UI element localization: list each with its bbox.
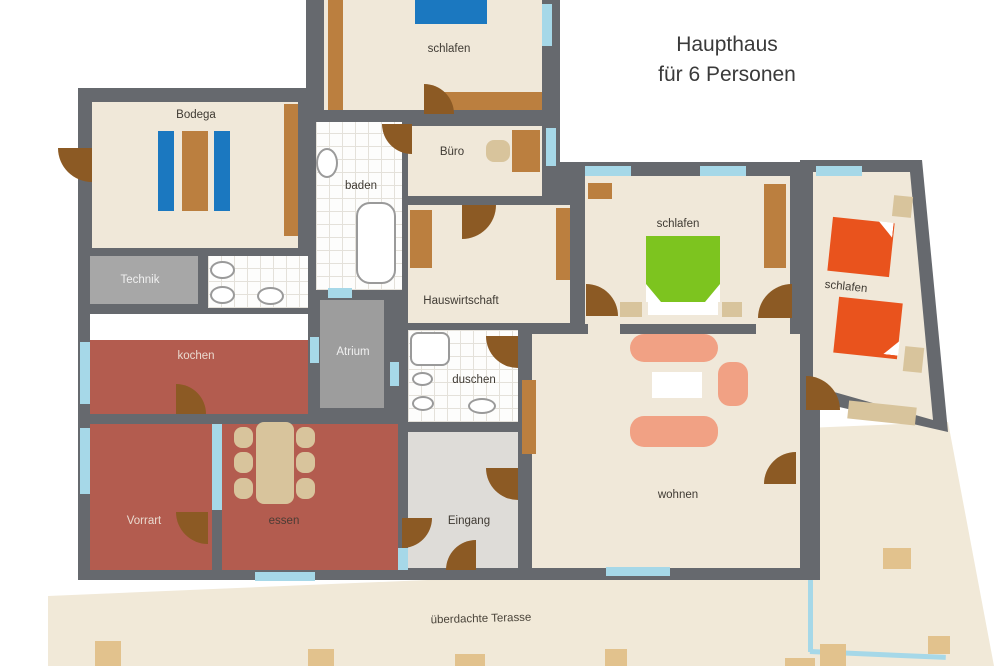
cabinet — [522, 380, 536, 454]
bed-blue — [415, 0, 487, 24]
coffee-table — [652, 372, 702, 398]
wardrobe — [410, 210, 432, 268]
door-gap — [588, 324, 620, 334]
label-baden: baden — [345, 180, 377, 192]
sofa — [630, 334, 718, 362]
window — [255, 572, 315, 581]
sink — [316, 148, 338, 178]
sink — [412, 396, 434, 411]
window — [606, 567, 670, 576]
label-essen: essen — [269, 515, 300, 527]
plan-title-line1: Haupthaus — [612, 30, 842, 60]
terrace-step — [883, 548, 911, 569]
sink — [468, 398, 496, 414]
window — [310, 337, 319, 363]
terrace-glass-line-vertical — [808, 574, 813, 652]
terrace-paver — [308, 649, 334, 666]
sofa — [630, 416, 718, 447]
wardrobe — [556, 208, 570, 280]
bathtub — [356, 202, 396, 284]
terrace-paver — [785, 658, 815, 666]
label-duschen: duschen — [452, 374, 495, 386]
window — [542, 4, 552, 46]
label-schlafen-oben: schlafen — [428, 43, 471, 55]
terrace-paver — [95, 641, 121, 666]
label-wohnen: wohnen — [658, 489, 698, 501]
terrace-paver — [928, 636, 950, 654]
kitchen-counter — [90, 314, 308, 340]
wardrobe — [764, 184, 786, 268]
wardrobe — [328, 0, 343, 110]
window — [398, 548, 408, 570]
dining-chair — [296, 478, 315, 499]
bed-foot — [648, 302, 718, 315]
label-technik: Technik — [121, 274, 160, 286]
dining-chair — [234, 452, 253, 473]
dining-table — [256, 422, 294, 504]
buero-desk — [512, 130, 540, 172]
window — [700, 166, 746, 176]
label-eingang: Eingang — [448, 515, 490, 527]
dining-chair — [234, 427, 253, 448]
label-bodega: Bodega — [176, 109, 216, 121]
nightstand — [722, 302, 742, 317]
window — [585, 166, 631, 176]
toilet — [210, 261, 235, 279]
window — [80, 342, 90, 404]
label-kochen: kochen — [177, 350, 214, 362]
window — [328, 288, 352, 298]
label-atrium: Atrium — [336, 346, 369, 358]
terrace-paver — [605, 649, 627, 666]
plan-title-line2: für 6 Personen — [612, 60, 842, 90]
glass-partition — [212, 424, 222, 510]
label-schlafen-mitte: schlafen — [657, 218, 700, 230]
wardrobe — [588, 183, 612, 199]
window — [80, 428, 90, 494]
bodega-door-arc — [58, 148, 92, 182]
door-gap — [756, 324, 790, 334]
label-buero: Büro — [440, 146, 464, 158]
label-vorrat: Vorrart — [127, 515, 162, 527]
sink — [257, 287, 284, 305]
plan-title: Haupthaus für 6 Personen — [612, 30, 842, 91]
armchair — [718, 362, 748, 406]
terrace-paver — [455, 654, 485, 666]
bodega-shelf-blue — [214, 131, 230, 211]
dining-chair — [296, 427, 315, 448]
window — [816, 166, 862, 176]
bodega-shelf-wood — [182, 131, 208, 211]
dining-chair — [234, 478, 253, 499]
room-wohnen — [532, 334, 800, 568]
nightstand — [620, 302, 642, 317]
terrace-paver — [820, 644, 846, 666]
floor-plan: Haupthaus für 6 Personen Bodega schlafen… — [0, 0, 1000, 666]
buero-chair — [486, 140, 510, 162]
toilet — [210, 286, 235, 304]
window — [390, 362, 399, 386]
bed-green — [646, 236, 720, 302]
nightstand — [892, 195, 913, 218]
dining-chair — [296, 452, 315, 473]
nightstand — [903, 346, 925, 373]
bodega-shelf-blue — [158, 131, 174, 211]
wardrobe — [444, 92, 542, 110]
room-vorrat — [90, 424, 212, 570]
sink — [412, 372, 433, 386]
bodega-wardrobe — [284, 104, 298, 236]
shower — [410, 332, 450, 366]
label-hauswirtschaft: Hauswirtschaft — [423, 295, 498, 307]
window — [546, 128, 556, 166]
